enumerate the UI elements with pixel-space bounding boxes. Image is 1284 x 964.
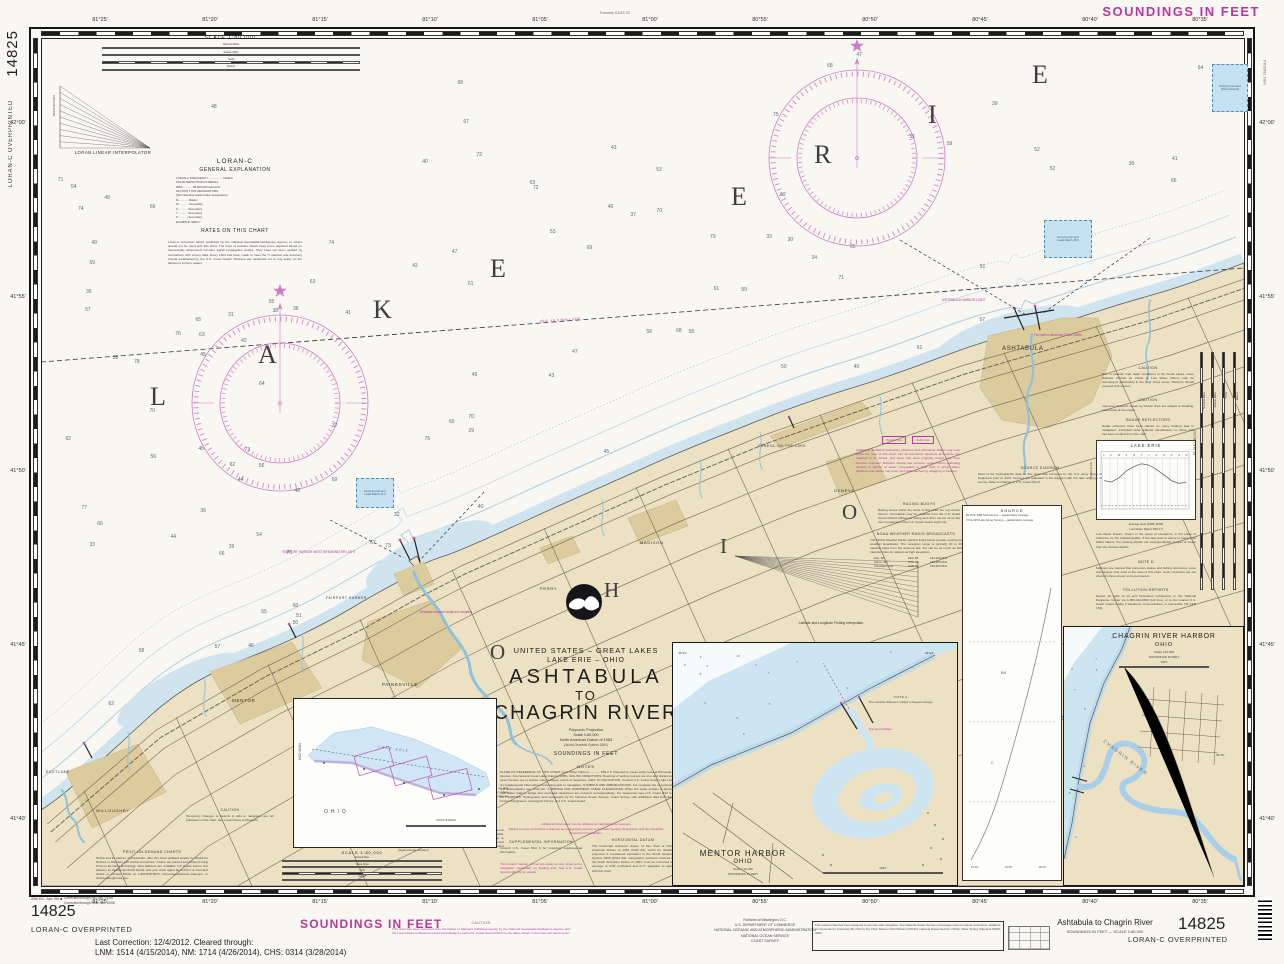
latitude-label: 41°40' xyxy=(7,816,29,822)
depth-sounding: 45 xyxy=(198,446,204,452)
border-graduation-left xyxy=(33,38,38,886)
depth-sounding: 37 xyxy=(332,423,338,429)
svg-text:A: A xyxy=(1126,453,1128,457)
depth-sounding: 61 xyxy=(917,345,923,351)
inset-depth-sounding: 8 xyxy=(1069,791,1071,795)
lake-name-letter: K xyxy=(373,295,392,325)
depth-sounding: 42 xyxy=(241,338,247,344)
horizontal-datum: HORIZONTAL DATUM The horizontal referenc… xyxy=(592,838,674,873)
depth-sounding: 59 xyxy=(741,287,747,293)
br-number: 14825 xyxy=(1178,914,1225,934)
chagrin-scale: Scale 1:10,000 xyxy=(1094,650,1234,654)
depth-sounding: 32 xyxy=(394,512,400,518)
longitude-label: 80°35' xyxy=(1183,17,1217,23)
chagrin-feet-label: FEET xyxy=(1119,661,1209,664)
svg-text:J: J xyxy=(1141,453,1143,457)
chagrin-state: OHIO xyxy=(1094,642,1234,648)
depth-sounding: 58 xyxy=(139,648,145,654)
source-diagram-intro: SOURCE DIAGRAMMost of the hydrographic d… xyxy=(978,466,1102,484)
title-projection: Polyconic Projection xyxy=(498,728,674,732)
loran-subheading: GENERAL EXPLANATION xyxy=(170,167,300,173)
rates-title: RATES ON THIS CHART xyxy=(170,228,300,234)
svg-text:S: S xyxy=(1163,453,1165,457)
svg-text:B4: B4 xyxy=(1001,670,1007,675)
depth-sounding: 71 xyxy=(58,177,64,183)
depth-sounding: 38 xyxy=(273,308,279,314)
inset-depth-sounding: 6 xyxy=(705,701,707,705)
depth-sounding: 75 xyxy=(425,436,431,442)
depth-sounding: 74 xyxy=(329,240,335,246)
latitude-label: 41°50' xyxy=(1256,468,1278,474)
depth-sounding: 54 xyxy=(71,184,77,190)
depth-sounding: 61 xyxy=(714,286,720,292)
depth-sounding: 69 xyxy=(587,245,593,251)
br-subtitle: SOUNDINGS IN FEET — SCALE 1:80,000 xyxy=(1040,929,1170,934)
inset-depth-sounding: 7 xyxy=(768,671,770,675)
dumping-ground-sub: (Discontinued) xyxy=(1221,88,1239,91)
scale-bar xyxy=(282,866,442,868)
latitude-label: 42°00' xyxy=(7,120,29,126)
depth-sounding: 52 xyxy=(1050,166,1056,172)
depth-sounding: 74 xyxy=(78,206,84,212)
vertical-scale-label: Yards xyxy=(1225,392,1228,399)
depth-sounding: 31 xyxy=(228,312,234,318)
depth-sounding: 57 xyxy=(85,307,91,313)
print-on-demand-note: PRINT-ON-DEMAND CHARTSNOAA and its partn… xyxy=(96,850,208,881)
scale-bar-label: Nautical Miles xyxy=(102,43,360,46)
depth-sounding: 34 xyxy=(812,255,818,261)
depth-sounding: 76 xyxy=(175,331,181,337)
depth-sounding: 78 xyxy=(134,359,140,365)
depth-sounding: 67 xyxy=(370,540,376,546)
scale-bar-label: Yards xyxy=(102,58,360,61)
depth-sounding: 65 xyxy=(195,317,201,323)
loran-line: EXAMPLE: 9960-Y xyxy=(176,220,298,224)
inset-depth-sounding: 6 xyxy=(1075,835,1077,839)
depth-sounding: 64 xyxy=(1198,65,1204,71)
depth-sounding: 56 xyxy=(150,454,156,460)
notes-magenta1: Additional information can be obtained a… xyxy=(500,822,672,826)
depth-sounding: 64 xyxy=(259,381,265,387)
depth-sounding: 69 xyxy=(332,477,338,483)
depth-sounding: 66 xyxy=(1171,178,1177,184)
chagrin-scale-bar xyxy=(1119,666,1209,668)
mentor-soundings: SOUNDINGS IN FEET xyxy=(683,872,803,876)
pipeline-area-box: Pipeline Area xyxy=(882,436,906,444)
harbor-note: For harbor detail see Chart 14836 xyxy=(1034,333,1082,337)
depth-sounding: 33 xyxy=(766,234,772,240)
lake-name-letter: E xyxy=(490,254,506,284)
caution-channels: CAUTIONImproved channels shown by broken… xyxy=(1102,398,1194,412)
depth-sounding: 45 xyxy=(604,449,610,455)
scale-bar xyxy=(282,860,442,862)
chart-title-1: ASHTABULA xyxy=(486,666,686,689)
place-label: WILLOUGHBY xyxy=(96,808,130,813)
depth-sounding: 35 xyxy=(86,289,92,295)
depth-sounding: 60 xyxy=(449,419,455,425)
caution-highwater: CAUTIONDue to periodic high water condit… xyxy=(1102,366,1194,388)
harbor-note: FAIRPORT HARBOR WEST BREAKWATER LIGHT xyxy=(282,550,356,554)
depth-sounding: 52 xyxy=(780,192,786,198)
depth-sounding: 46 xyxy=(608,204,614,210)
inset-depth-sounding: 7 xyxy=(796,660,798,664)
vertical-scale-label: Statute Miles xyxy=(1214,392,1217,408)
vertical-scale-bars: Nautical MilesStatute MilesYardsMeters xyxy=(1200,352,1246,594)
depth-sounding: 37 xyxy=(631,212,637,218)
place-label: GENEVA xyxy=(834,488,855,493)
state-name-letter: I xyxy=(720,534,727,559)
barcode xyxy=(1258,898,1272,940)
place-label: ASHTABULA xyxy=(1002,346,1044,352)
note-d: NOTE DMariners are warned that numerous … xyxy=(1096,560,1196,578)
depth-sounding: 30 xyxy=(788,237,794,243)
cleared-line: LNM: 1514 (4/15/2014), NM: 1714 (4/26/20… xyxy=(95,948,346,957)
depth-sounding: 41 xyxy=(1172,156,1178,162)
plotting-interp-caption: Latitude and Longitude Plotting Interpol… xyxy=(756,621,906,625)
pod-box: This revised chart has been designed to … xyxy=(812,921,1004,951)
depth-sounding: 71 xyxy=(839,275,845,281)
longitude-label: 80°55' xyxy=(743,17,777,23)
loran-explanation-lines: LORAN-C FREQUENCY ................. 100k… xyxy=(176,176,298,224)
submarine-caution: Additional uncharted submarine pipelines… xyxy=(856,448,960,473)
depth-sounding: 33 xyxy=(90,542,96,548)
inset-depth-sounding: 10 xyxy=(736,654,739,658)
chagrin-soundings: SOUNDINGS IN FEET xyxy=(1094,655,1234,659)
racing-buoys-note: RACING BUOYSRacing buoys within the limi… xyxy=(878,502,960,524)
longitude-label: 81°00' xyxy=(633,17,667,23)
mentor-note-a: NOTE A The entrance channel is subject t… xyxy=(861,695,941,704)
place-label: MADISON xyxy=(640,540,664,545)
vertical-scale-label: Meters xyxy=(1236,392,1239,400)
depth-sounding: 42 xyxy=(412,263,418,269)
place-label: MENTOR xyxy=(232,698,256,703)
hydro-datum-caption: Low Water Datum 569.2 ft xyxy=(1096,527,1196,531)
title-scale: Scale 1:80,000 xyxy=(498,733,674,737)
weather-radio-note: NOAA WEATHER RADIO BROADCASTSThe NOAA We… xyxy=(870,532,962,569)
scale-bar xyxy=(102,69,360,71)
border-graduation-bottom xyxy=(41,889,1244,894)
inset-depth-sounding: 9 xyxy=(743,732,745,736)
notes-magenta3: The prudent mariner will not rely solely… xyxy=(500,862,582,875)
inset-depth-sounding: 6 xyxy=(700,655,702,659)
lake-level-chart: JFMAMJJASOND xyxy=(1098,449,1194,515)
depth-sounding: 48 xyxy=(294,488,300,494)
lake-name-letter: A xyxy=(258,340,277,370)
depth-sounding: 40 xyxy=(478,504,484,510)
depth-sounding: 47 xyxy=(452,249,458,255)
svg-text:J: J xyxy=(1103,453,1105,457)
depth-sounding: 36 xyxy=(200,508,206,514)
lake-name-letter: I xyxy=(928,100,937,130)
depth-sounding: 72 xyxy=(476,152,482,158)
depth-sounding: 49 xyxy=(91,240,97,246)
scale-title-bottom: SCALE 1:80,000 xyxy=(282,850,442,855)
inset-depth-sounding: 7 xyxy=(1095,657,1097,661)
depth-sounding: 29 xyxy=(469,428,475,434)
latitude-label: 41°55' xyxy=(1256,294,1278,300)
chagrin-river-inset: CHAGRIN RIVER HARBOR OHIO Scale 1:10,000… xyxy=(1063,626,1244,886)
inset-depth-sounding: 6 xyxy=(846,686,848,690)
inset-depth-sounding: 9 xyxy=(707,664,709,668)
depth-sounding: 51 xyxy=(296,613,302,619)
depth-sounding: 44 xyxy=(170,534,176,540)
hydrograph-title: LAKE ERIE xyxy=(1097,443,1195,448)
depth-sounding: 49 xyxy=(472,372,478,378)
longitude-label: 81°15' xyxy=(303,899,337,905)
longitude-label: 80°45' xyxy=(963,17,997,23)
title-nation: UNITED STATES – GREAT LAKES xyxy=(498,646,674,655)
depth-sounding: 48 xyxy=(211,104,217,110)
depth-sounding: 68 xyxy=(676,328,682,334)
longitude-label: 81°15' xyxy=(303,17,337,23)
place-label: EASTLAKE xyxy=(46,770,70,774)
latitude-label: 42°00' xyxy=(1256,120,1278,126)
pollution-reports-note: POLLUTION REPORTSReport all spills of oi… xyxy=(1096,588,1196,610)
lake-name-letter: E xyxy=(731,182,747,212)
side-chart-number: 14825 xyxy=(4,30,21,77)
depth-sounding: 51 xyxy=(910,134,916,140)
vertical-scale-bar xyxy=(1211,352,1214,590)
br-overprint: LORAN-C OVERPRINTED xyxy=(1128,935,1228,944)
place-label: PERRY xyxy=(540,586,557,591)
dumping-ground: Dumping Ground(Discontinued) xyxy=(1212,64,1248,112)
depth-sounding: 73 xyxy=(245,447,251,453)
source-diagram-map: B4 C 81°20' 81°00' 80°40' xyxy=(963,522,1061,872)
weather-stations: Erie, PAKEC-58162.400 MHz Akron, OHWXL-3… xyxy=(870,556,962,569)
cable-area-box: Cable Area xyxy=(912,436,933,444)
depth-sounding: 62 xyxy=(108,701,114,707)
depth-sounding: 77 xyxy=(81,505,87,511)
svg-text:O: O xyxy=(1171,453,1173,457)
depth-sounding: 62 xyxy=(66,436,72,442)
depth-sounding: 56 xyxy=(259,463,265,469)
lake-level-panel: LAKE ERIE JFMAMJJASOND xyxy=(1096,440,1196,520)
inset-depth-sounding: 9 xyxy=(1083,764,1085,768)
notes-title: NOTES xyxy=(498,764,674,769)
longitude-label: 80°35' xyxy=(1183,899,1217,905)
loran-interp-caption: LORAN LINEAR INTERPOLATOR xyxy=(58,150,168,155)
inset-depth-sounding: 8 xyxy=(684,663,686,667)
inset-depth-sounding: 5 xyxy=(769,702,771,706)
harbor-note: Entrance channel subject to shoaling xyxy=(420,610,472,614)
dumping-ground-sub: Least Depth 41 ft xyxy=(364,493,385,496)
source-panel: SOURCE B4 1970–1986 NOS Surveys — partia… xyxy=(962,505,1062,881)
depth-sounding: 68 xyxy=(827,63,833,69)
dumping-ground: Dumping GroundLeast Depth 38 ft xyxy=(1044,220,1092,258)
longitude-label: 80°50' xyxy=(853,17,887,23)
longitude-label: 81°05' xyxy=(523,17,557,23)
longitude-label: 81°10' xyxy=(413,899,447,905)
depth-sounding: 44 xyxy=(238,477,244,483)
longitude-label: 80°50' xyxy=(853,899,887,905)
depth-sounding: 73 xyxy=(385,543,391,549)
notes-body: PLANE OF REFERENCE OF THIS CHART (Low Wa… xyxy=(500,770,672,803)
depth-sounding: 54 xyxy=(256,532,262,538)
chagrin-lat: 41°40' xyxy=(1216,753,1224,757)
lake-name-letter: E xyxy=(1032,60,1048,90)
scale-bar xyxy=(282,872,442,874)
title-region: LAKE ERIE – OHIO xyxy=(498,657,674,664)
supplemental-info: SUPPLEMENTAL INFORMATION Consult U.S. Co… xyxy=(500,840,582,854)
loran-heading: LORAN-C xyxy=(170,158,300,165)
microseconds-label: MICROSECONDS xyxy=(53,95,56,116)
depth-sounding: 68 xyxy=(457,80,463,86)
svg-text:81°00': 81°00' xyxy=(1005,865,1013,869)
depth-sounding: 53 xyxy=(550,229,556,235)
longitude-label: 80°45' xyxy=(963,899,997,905)
chart-title-3: CHAGRIN RIVER xyxy=(486,702,686,725)
state-name-letter: O xyxy=(842,500,857,525)
longitude-label: 81°20' xyxy=(193,17,227,23)
edition-note: 49th Ed., Jan. /06 ■ xyxy=(31,897,62,901)
depth-sounding: 51 xyxy=(980,264,986,270)
depth-sounding: 62 xyxy=(230,462,236,468)
scale-bar xyxy=(102,47,360,49)
right-margin-ref: NSN 7642014 xyxy=(1262,60,1267,85)
svg-text:J: J xyxy=(1148,453,1150,457)
caution-1: CAUTIONTemporary changes or defects in a… xyxy=(186,808,274,822)
mentor-lat-right: 41°44' xyxy=(925,651,933,655)
side-overprint: LORAN-C OVERPRINTED xyxy=(8,100,14,187)
harbor-note: ASHTABULA HARBOR LIGHT xyxy=(942,298,985,302)
depth-sounding: 57 xyxy=(215,644,221,650)
state-name-letter: O xyxy=(490,640,505,665)
depth-sounding: 66 xyxy=(150,204,156,210)
depth-sounding: 59 xyxy=(947,141,953,147)
scale-bar xyxy=(102,54,360,56)
title-datum2: (World Geodetic System 1984) xyxy=(498,743,674,747)
longitude-label: 80°40' xyxy=(1073,17,1107,23)
longitude-label: 80°40' xyxy=(1073,899,1107,905)
svg-text:M: M xyxy=(1118,453,1120,457)
svg-text:D: D xyxy=(1186,453,1188,457)
svg-text:81°20': 81°20' xyxy=(971,865,979,869)
br-title: Ashtabula to Chagrin River xyxy=(1040,918,1170,927)
depth-sounding: 72 xyxy=(533,185,539,191)
depth-sounding: 70 xyxy=(657,208,663,214)
depth-sounding: 66 xyxy=(97,521,103,527)
vertical-scale-label: Nautical Miles xyxy=(1203,392,1206,409)
mentor-harbor-inset: 41°44' 41°44' NOTE A The entrance channe… xyxy=(672,642,958,886)
soundings-in-feet-bottom: SOUNDINGS IN FEET xyxy=(300,917,442,931)
inset-depth-sounding: 7 xyxy=(1074,688,1076,692)
vertical-scale-bar xyxy=(1233,352,1236,590)
noaa-logo xyxy=(566,584,602,620)
depth-sounding: 63 xyxy=(199,332,205,338)
scale-title-top: SCALE 1:80,000 xyxy=(150,35,310,41)
depth-sounding: 66 xyxy=(219,551,225,557)
depth-sounding: 40 xyxy=(854,364,860,370)
depth-sounding: 43 xyxy=(549,373,555,379)
depth-sounding: 58 xyxy=(646,329,652,335)
depth-sounding: 40 xyxy=(422,159,428,165)
latitude-label: 41°45' xyxy=(7,642,29,648)
depth-sounding: 67 xyxy=(463,119,469,125)
mentor-scale-bar xyxy=(823,872,943,874)
inset-depth-sounding: 5 xyxy=(1071,667,1073,671)
depth-sounding: 46 xyxy=(248,643,254,649)
mentor-pumpout: Pumpout facilities xyxy=(869,727,892,731)
depth-sounding: 47 xyxy=(857,52,863,58)
depth-sounding: 70 xyxy=(468,414,474,420)
locator-michigan: MICHIGAN xyxy=(298,743,302,760)
longitude-label: 81°05' xyxy=(523,899,557,905)
border-graduation-right xyxy=(1247,38,1252,886)
svg-text:F: F xyxy=(1111,453,1113,457)
svg-text:N: N xyxy=(1178,453,1180,457)
vertical-scale-bar xyxy=(1222,352,1225,590)
depth-sounding: 45 xyxy=(200,352,206,358)
depth-sounding: 65 xyxy=(850,244,856,250)
depth-sounding: 39 xyxy=(229,544,235,550)
depth-sounding: 55 xyxy=(261,609,267,615)
mentor-harbor-map xyxy=(673,643,956,884)
depth-sounding: 43 xyxy=(611,145,617,151)
depth-sounding: 35 xyxy=(113,355,119,361)
depth-sounding: 70 xyxy=(150,408,156,414)
svg-text:M: M xyxy=(1133,453,1135,457)
longitude-label: 81°00' xyxy=(633,899,667,905)
longitude-label: 81°20' xyxy=(193,899,227,905)
longitude-label: 81°25' xyxy=(83,17,117,23)
svg-text:C: C xyxy=(991,760,994,765)
soundings-note-top: SOUNDINGS IN FEET xyxy=(1102,4,1260,19)
depth-sounding: 48 xyxy=(104,195,110,201)
inset-depth-sounding: 5 xyxy=(890,650,892,654)
locator-scale-bar xyxy=(406,825,486,827)
dumping-ground: Dumping GroundLeast Depth 41 ft xyxy=(356,478,394,508)
last-correction: Last Correction: 12/4/2012. Cleared thro… xyxy=(95,938,253,947)
depth-sounding: 61 xyxy=(468,281,474,287)
mentor-lat-left: 41°44' xyxy=(678,651,686,655)
inset-depth-sounding: 8 xyxy=(1084,707,1086,711)
dumping-ground-sub: Least Depth 38 ft xyxy=(1057,239,1078,242)
depth-sounding: 36 xyxy=(293,306,299,312)
lake-name-letter: R xyxy=(814,140,831,170)
notes-magenta2: Sailing courses and harbor entrances are… xyxy=(505,827,667,835)
inset-depth-sounding: 7 xyxy=(755,663,757,667)
depth-sounding: 58 xyxy=(689,329,695,335)
svg-text:80°40': 80°40' xyxy=(1039,865,1047,869)
scale-bar-label: Statute Miles xyxy=(102,51,360,54)
longitude-label: 80°55' xyxy=(743,899,777,905)
locator-scale-label: STATUTE MILES xyxy=(406,819,486,822)
depth-sounding: 50 xyxy=(781,364,787,370)
hydro-body: Low Water Datum, shown in the panel of e… xyxy=(1096,532,1196,549)
mentor-scale: Scale 1:10,000 xyxy=(683,867,803,871)
scale-bar-label: Meters xyxy=(102,65,360,68)
depth-sounding: 55 xyxy=(269,299,275,305)
longitude-label: 81°10' xyxy=(413,17,447,23)
scale-bar xyxy=(282,879,442,881)
locator-inset: MICHIGAN OHIO LAKE ERIE STATUTE MILES xyxy=(293,698,497,848)
chart-title-2: TO xyxy=(498,688,674,703)
depth-sounding: 57 xyxy=(980,317,986,323)
depth-sounding: 50 xyxy=(293,620,299,626)
scale-bar xyxy=(102,61,360,63)
latitude-label: 41°40' xyxy=(1256,816,1278,822)
mentor-feet-label: FEET xyxy=(823,867,943,870)
pipeline-cable-boxes: Pipeline Area Cable Area xyxy=(856,436,960,444)
place-label: FAIRPORT HARBOR xyxy=(326,596,367,600)
depth-sounding: 39 xyxy=(992,101,998,107)
top-margin-note: Formerly C&GS 33 xyxy=(600,11,630,15)
mentor-title: MENTOR HARBOR xyxy=(683,849,803,858)
title-datum: North American Datum of 1983 xyxy=(498,738,674,742)
latitude-label: 41°50' xyxy=(7,468,29,474)
chagrin-title: CHAGRIN RIVER HARBOR xyxy=(1094,633,1234,640)
overprint-bl: LORAN-C OVERPRINTED xyxy=(31,925,132,934)
